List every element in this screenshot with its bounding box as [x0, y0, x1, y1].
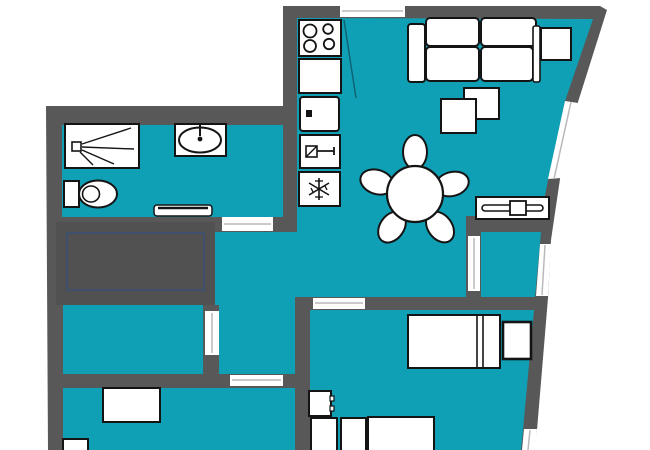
oven-knob	[306, 110, 312, 117]
oven	[300, 97, 339, 131]
floor-plan	[0, 0, 650, 450]
washbasin-drain	[198, 137, 203, 142]
floor-small-room	[481, 232, 541, 297]
door-leaf-hinge-1	[330, 396, 334, 401]
door-leaf-hinge-2	[330, 406, 334, 411]
shower-head	[72, 142, 81, 151]
stairwell-block	[56, 222, 215, 305]
floor-bedroom-left	[63, 305, 203, 374]
floor-plan-page	[0, 0, 650, 450]
dining-chair-top	[403, 135, 427, 169]
double-bed-body	[368, 417, 434, 450]
nightstand	[503, 322, 531, 359]
dresser	[103, 388, 160, 422]
floor-bedroom-bottom-left	[63, 388, 295, 450]
kitchen-counter	[299, 59, 341, 93]
coffee-table-2	[441, 99, 476, 133]
single-bed	[408, 315, 500, 368]
door-leaf	[309, 391, 331, 416]
double-bed-pillow-1	[311, 418, 337, 450]
toilet-bowl-inner	[83, 186, 100, 202]
tv-sideboard-box	[510, 201, 526, 215]
double-bed-pillow-2	[341, 418, 366, 450]
sofa-seat-cushion-2	[481, 47, 533, 81]
sofa-armrest-right	[533, 26, 540, 82]
cabinet	[63, 439, 88, 450]
dining-table	[387, 166, 443, 222]
sofa-seat-cushion-1	[426, 47, 479, 81]
radiator	[154, 205, 212, 216]
side-table	[541, 28, 571, 60]
toilet-tank	[64, 181, 79, 207]
sofa-back-cushion-1	[426, 18, 479, 46]
sofa-armrest-left	[408, 24, 425, 82]
sofa-back-cushion-2	[481, 18, 536, 46]
